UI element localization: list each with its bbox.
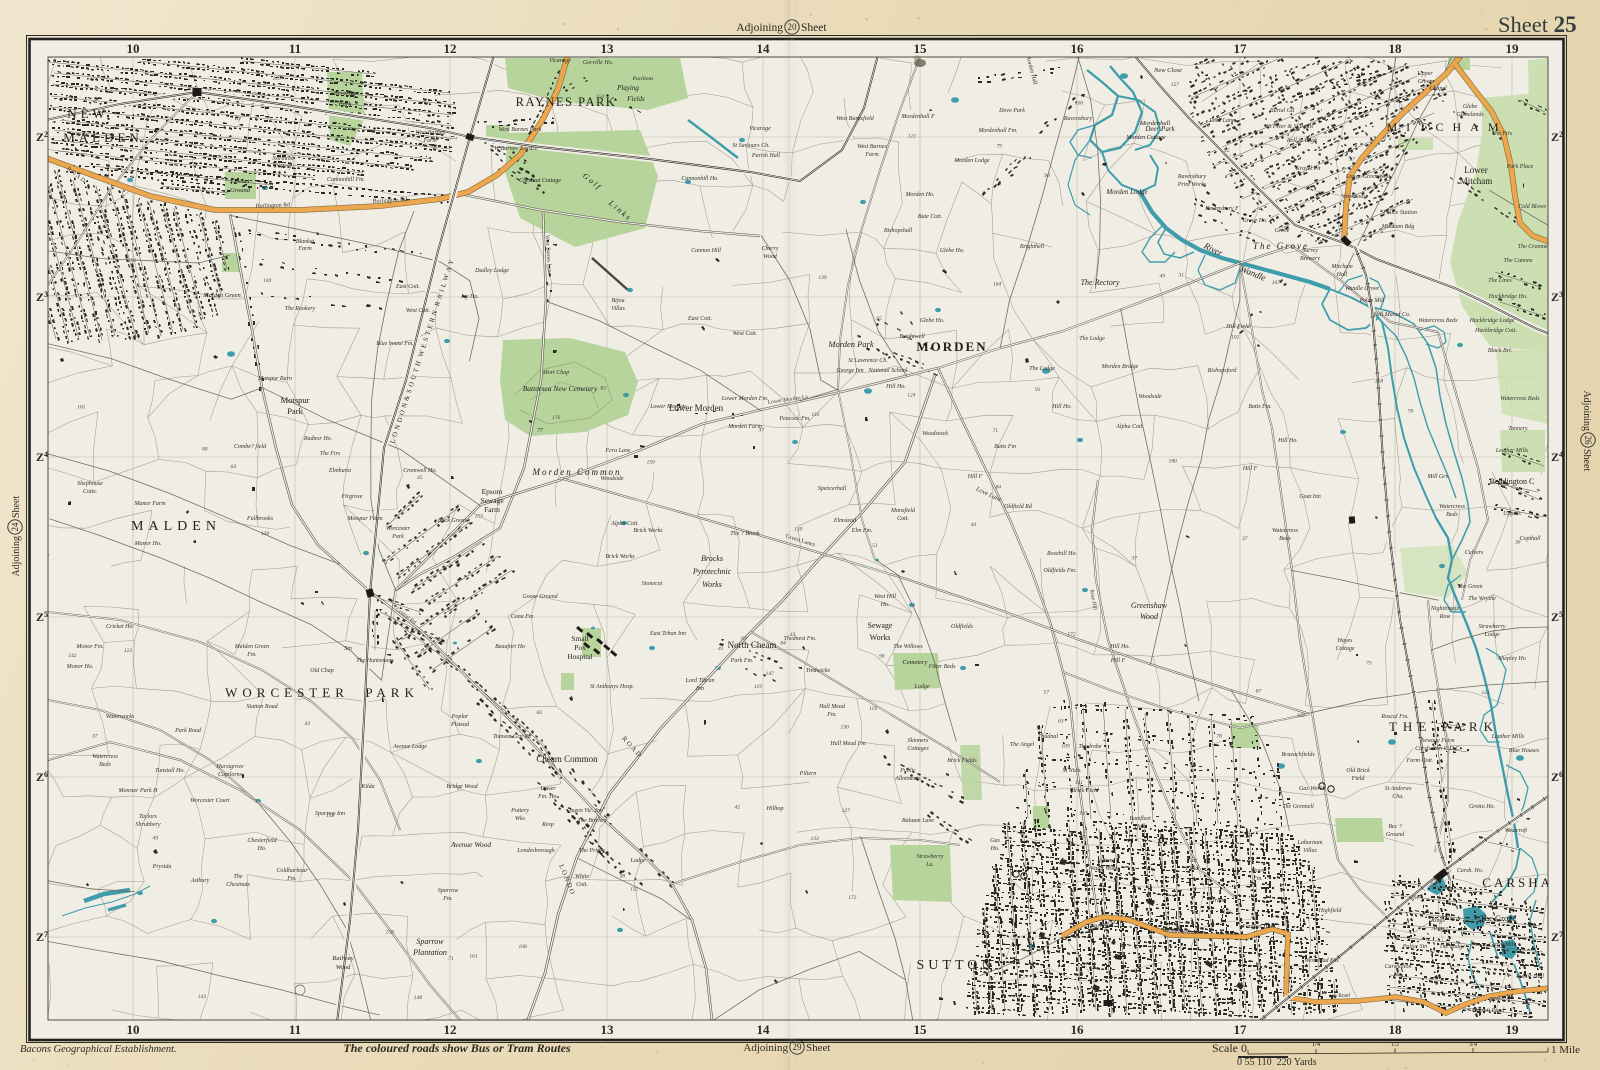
svg-text:Nightingale: Nightingale xyxy=(1430,606,1460,612)
svg-text:Inn: Inn xyxy=(695,686,704,692)
svg-text:East Cott.: East Cott. xyxy=(395,284,420,290)
svg-text:Hilltop: Hilltop xyxy=(765,806,783,812)
svg-text:St Nich.: St Nich. xyxy=(1063,768,1082,774)
svg-text:78: 78 xyxy=(1407,408,1413,414)
svg-text:19: 19 xyxy=(1506,1022,1520,1037)
svg-text:Bavensbury F: Bavensbury F xyxy=(1205,206,1239,212)
svg-text:Gravel Pit: Gravel Pit xyxy=(1295,166,1320,172)
svg-text:West Barnes Park: West Barnes Park xyxy=(499,127,542,133)
svg-text:Farm: Farm xyxy=(422,138,437,144)
svg-text:Mitcham: Mitcham xyxy=(1330,264,1353,270)
svg-text:Monster Park H: Monster Park H xyxy=(118,788,159,794)
svg-text:Glebelands: Glebelands xyxy=(1456,112,1484,118)
svg-text:101: 101 xyxy=(1411,895,1420,901)
svg-text:Chesterfield: Chesterfield xyxy=(247,837,277,844)
svg-text:Motspur Farm: Motspur Farm xyxy=(346,516,383,522)
svg-text:Bacons Geographical Establishm: Bacons Geographical Establishment. xyxy=(20,1044,177,1055)
svg-text:Farm: Farm xyxy=(864,152,879,158)
svg-text:Hall: Hall xyxy=(1134,824,1146,830)
svg-text:141: 141 xyxy=(1075,779,1084,786)
svg-text:Astbury: Astbury xyxy=(190,878,210,884)
svg-text:Plantation: Plantation xyxy=(412,948,447,957)
svg-text:Rosehill Ho.: Rosehill Ho. xyxy=(1046,551,1077,557)
svg-text:13: 13 xyxy=(601,41,615,56)
svg-text:Butts Fm: Butts Fm xyxy=(994,444,1016,450)
svg-text:W Barnes Terrace: W Barnes Terrace xyxy=(494,146,538,152)
svg-text:Oldfields: Oldfields xyxy=(951,623,974,630)
svg-text:83: 83 xyxy=(600,385,606,391)
svg-text:Pavilions: Pavilions xyxy=(632,76,654,82)
svg-text:Grove Ho.: Grove Ho. xyxy=(1242,218,1267,224)
svg-text:Watercress: Watercress xyxy=(1439,504,1466,510)
svg-text:122: 122 xyxy=(124,648,133,654)
svg-text:Bijou: Bijou xyxy=(612,298,625,304)
svg-text:Copthall: Copthall xyxy=(1519,536,1540,542)
svg-text:102: 102 xyxy=(1231,335,1240,341)
svg-text:Captlorns: Captlorns xyxy=(218,772,243,778)
svg-text:Lock Lane: Lock Lane xyxy=(1208,118,1235,124)
svg-text:Wood: Wood xyxy=(763,254,777,260)
svg-text:77: 77 xyxy=(537,428,544,434)
svg-text:Poplar: Poplar xyxy=(451,714,469,720)
svg-text:Kilda: Kilda xyxy=(360,784,374,790)
svg-text:Morden Cottage: Morden Cottage xyxy=(1125,135,1166,141)
svg-text:The Green: The Green xyxy=(1457,584,1482,590)
svg-text:Radnor Ho.: Radnor Ho. xyxy=(303,436,332,442)
svg-text:42: 42 xyxy=(734,803,740,810)
svg-text:Pottery: Pottery xyxy=(510,808,529,814)
svg-text:Stn: Stn xyxy=(344,646,352,652)
svg-text:Wood: Wood xyxy=(1140,612,1159,621)
svg-text:THE PARK: THE PARK xyxy=(1389,719,1499,734)
svg-text:Fm.: Fm. xyxy=(246,652,257,658)
svg-text:St Lawrence Ch.: St Lawrence Ch. xyxy=(848,358,888,364)
svg-text:127: 127 xyxy=(842,808,851,814)
svg-text:Works: Works xyxy=(870,633,891,642)
svg-text:14: 14 xyxy=(757,41,771,56)
svg-text:Watercress Beds: Watercress Beds xyxy=(1500,396,1540,402)
svg-text:78: 78 xyxy=(1216,734,1222,740)
svg-text:Laburnum: Laburnum xyxy=(1296,840,1323,846)
svg-text:93: 93 xyxy=(741,636,747,642)
svg-text:66: 66 xyxy=(536,710,542,716)
svg-text:Cotts.: Cotts. xyxy=(83,489,97,495)
svg-text:57: 57 xyxy=(1044,690,1050,696)
svg-text:Woodstock: Woodstock xyxy=(922,431,948,437)
svg-text:180: 180 xyxy=(1168,459,1177,465)
svg-text:Hackbridge Cott.: Hackbridge Cott. xyxy=(1474,328,1517,334)
svg-text:Adjoining: Adjoining xyxy=(743,1042,788,1054)
svg-text:Cricket: Cricket xyxy=(230,178,249,185)
svg-text:Woodside: Woodside xyxy=(600,476,623,482)
svg-text:St Saviours Ch.: St Saviours Ch. xyxy=(732,143,769,149)
svg-text:158: 158 xyxy=(385,930,394,936)
svg-text:The Wrythe: The Wrythe xyxy=(1468,596,1496,602)
svg-text:Cannonhill Ho.: Cannonhill Ho. xyxy=(681,176,718,182)
svg-text:172: 172 xyxy=(1067,631,1076,637)
svg-text:Brick Works: Brick Works xyxy=(605,554,635,560)
svg-text:Public: Public xyxy=(899,768,916,774)
svg-text:Pox: Pox xyxy=(574,643,586,652)
svg-text:119: 119 xyxy=(754,684,762,690)
svg-text:Goose Ground: Goose Ground xyxy=(522,594,558,600)
svg-text:Monor Ho.: Monor Ho. xyxy=(66,664,94,670)
svg-text:Police Station: Police Station xyxy=(1382,210,1417,216)
svg-text:The Canons: The Canons xyxy=(1504,258,1534,264)
svg-text:37: 37 xyxy=(758,428,765,434)
svg-text:Roll & Bagb: Roll & Bagb xyxy=(1286,138,1317,144)
svg-text:Elmstead: Elmstead xyxy=(833,518,857,524)
svg-text:Batts Fm.: Batts Fm. xyxy=(1248,404,1271,410)
svg-text:31: 31 xyxy=(1178,273,1185,279)
svg-text:143: 143 xyxy=(198,993,207,1000)
svg-text:Villas: Villas xyxy=(1303,848,1317,854)
svg-text:11: 11 xyxy=(289,1022,301,1037)
svg-text:Hill Ho.: Hill Ho. xyxy=(885,384,906,390)
svg-text:Upper: Upper xyxy=(1417,71,1433,77)
svg-text:125: 125 xyxy=(273,76,282,82)
svg-text:Workhouse: Workhouse xyxy=(1342,194,1369,200)
svg-text:56: 56 xyxy=(130,258,136,264)
svg-text:161: 161 xyxy=(469,953,478,959)
svg-text:Queen Vic. Inn: Queen Vic. Inn xyxy=(567,808,603,814)
svg-text:Hill F: Hill F xyxy=(1242,466,1258,472)
svg-text:37: 37 xyxy=(1241,536,1248,542)
svg-text:Avenue Wood: Avenue Wood xyxy=(450,840,492,849)
svg-text:Wood: Wood xyxy=(336,964,351,971)
svg-text:Ravensbury: Ravensbury xyxy=(1177,174,1207,180)
svg-text:Oldfield Rd: Oldfield Rd xyxy=(1004,503,1033,510)
svg-text:36: 36 xyxy=(1514,539,1521,545)
svg-text:Beds: Beds xyxy=(1279,536,1291,542)
svg-text:49: 49 xyxy=(1160,272,1166,279)
svg-text:Fm.: Fm. xyxy=(286,876,297,882)
svg-text:Lodge: Lodge xyxy=(1484,632,1500,638)
svg-text:Norbiton: Norbiton xyxy=(271,156,294,162)
svg-text:Cemetery: Cemetery xyxy=(903,659,928,666)
svg-text:The Firs: The Firs xyxy=(1492,131,1513,137)
svg-text:Adjoining: Adjoining xyxy=(11,536,22,577)
svg-text:The Rookery: The Rookery xyxy=(285,306,316,312)
svg-text:Sheet: Sheet xyxy=(801,22,827,34)
svg-text:Strawberry: Strawberry xyxy=(1479,624,1506,630)
svg-text:Leather Mills: Leather Mills xyxy=(1495,448,1529,454)
svg-text:Lower Morden: Lower Morden xyxy=(649,404,686,410)
svg-text:Station Road: Station Road xyxy=(246,704,278,710)
svg-text:116: 116 xyxy=(811,412,819,418)
svg-text:Hospital: Hospital xyxy=(567,652,592,661)
svg-text:West Barnes: West Barnes xyxy=(857,144,887,150)
svg-text:Westcroft: Westcroft xyxy=(1505,827,1528,834)
svg-text:Lodge: Lodge xyxy=(914,684,930,690)
svg-text:Shephouse: Shephouse xyxy=(77,481,103,487)
svg-text:Park: Park xyxy=(391,534,404,540)
svg-text:The Huntsmans: The Huntsmans xyxy=(356,658,394,664)
svg-text:37: 37 xyxy=(91,734,98,740)
svg-text:91: 91 xyxy=(1035,387,1041,393)
svg-text:St Anthonys Hosp.: St Anthonys Hosp. xyxy=(590,684,634,690)
svg-text:Playing: Playing xyxy=(616,84,639,92)
svg-text:Cherry: Cherry xyxy=(762,246,779,252)
svg-text:Farm Cott.: Farm Cott. xyxy=(1406,758,1434,764)
svg-text:Piltern: Piltern xyxy=(799,771,817,777)
svg-text:124: 124 xyxy=(907,392,916,399)
svg-text:Mort Chap: Mort Chap xyxy=(542,370,570,376)
svg-text:Resp: Resp xyxy=(541,822,554,828)
svg-text:Blanket: Blanket xyxy=(296,239,315,245)
svg-text:West Cott.: West Cott. xyxy=(733,331,757,337)
svg-text:Public Hall: Public Hall xyxy=(1515,974,1544,980)
svg-text:Filter Beds: Filter Beds xyxy=(928,664,956,670)
svg-text:Sheet: Sheet xyxy=(1581,449,1592,471)
svg-text:Print Works: Print Works xyxy=(1177,182,1207,188)
svg-text:71: 71 xyxy=(448,956,454,962)
svg-text:Highfield: Highfield xyxy=(1318,907,1343,914)
svg-text:Sparrow: Sparrow xyxy=(438,888,458,894)
svg-text:Scale 0: Scale 0 xyxy=(1212,1041,1247,1055)
svg-text:Water Works: Water Works xyxy=(1090,866,1121,872)
svg-text:109: 109 xyxy=(1061,744,1070,750)
svg-text:Woodside: Woodside xyxy=(1138,394,1161,400)
svg-text:119: 119 xyxy=(869,706,877,712)
svg-text:West Hill: West Hill xyxy=(874,594,896,600)
svg-text:MALDEN: MALDEN xyxy=(131,519,221,534)
svg-text:11: 11 xyxy=(289,41,301,56)
svg-text:150: 150 xyxy=(647,460,656,466)
svg-text:12: 12 xyxy=(444,1022,457,1037)
svg-text:Lodge: Lodge xyxy=(630,858,646,864)
svg-text:Morden Park: Morden Park xyxy=(827,339,873,349)
svg-text:Gorville Ho.: Gorville Ho. xyxy=(583,60,613,66)
svg-text:Beds: Beds xyxy=(99,762,111,768)
svg-text:Mitcham: Mitcham xyxy=(1460,176,1493,186)
svg-text:Hackbridge Ho.: Hackbridge Ho. xyxy=(1488,294,1528,300)
svg-text:Carshalton: Carshalton xyxy=(1384,964,1411,970)
svg-text:Glebe Ho.: Glebe Ho. xyxy=(940,248,965,254)
svg-text:Fcru Lane: Fcru Lane xyxy=(604,448,631,454)
svg-text:Parish Hall: Parish Hall xyxy=(751,153,781,159)
svg-text:Beddington C: Beddington C xyxy=(1490,477,1535,486)
svg-text:Cottage: Cottage xyxy=(1336,646,1355,652)
svg-text:0 55 110 220 Yards: 0 55 110 220 Yards xyxy=(1237,1057,1317,1068)
svg-text:Thadrobe: Thadrobe xyxy=(1078,744,1101,750)
svg-text:3/4: 3/4 xyxy=(1469,1041,1478,1048)
svg-text:St Andrews: St Andrews xyxy=(1385,786,1413,792)
svg-text:87: 87 xyxy=(1256,688,1262,694)
svg-text:Tomson Grn Rd: Tomson Grn Rd xyxy=(493,734,532,740)
svg-text:79: 79 xyxy=(996,144,1002,150)
svg-text:Cold Blows: Cold Blows xyxy=(1518,204,1547,210)
svg-text:Strawberry: Strawberry xyxy=(917,854,944,860)
svg-text:Sewage Farm: Sewage Farm xyxy=(1421,738,1455,744)
svg-text:100: 100 xyxy=(1075,101,1084,107)
svg-text:Lower Green West: Lower Green West xyxy=(1345,174,1391,180)
svg-text:43: 43 xyxy=(304,720,310,727)
svg-text:New Close: New Close xyxy=(1153,67,1182,74)
svg-text:Hull Mead Fm: Hull Mead Fm xyxy=(829,741,866,747)
svg-text:Balaam Lane: Balaam Lane xyxy=(902,818,935,824)
svg-text:Burial Gd: Burial Gd xyxy=(1270,108,1295,114)
svg-text:24: 24 xyxy=(10,522,20,532)
svg-text:Cott.: Cott. xyxy=(897,516,909,522)
svg-text:Vicarage: Vicarage xyxy=(749,126,771,132)
svg-text:117: 117 xyxy=(1440,927,1448,933)
svg-text:Old Chap: Old Chap xyxy=(310,668,334,674)
svg-text:Lord Tibran: Lord Tibran xyxy=(685,678,715,684)
svg-text:Adjoining: Adjoining xyxy=(736,22,783,34)
svg-text:Row: Row xyxy=(1439,614,1451,620)
svg-text:Coldharbour: Coldharbour xyxy=(276,868,308,874)
svg-text:West Barnsfield: West Barnsfield xyxy=(836,115,875,122)
svg-text:The Grennell: The Grennell xyxy=(1282,804,1314,810)
svg-text:64: 64 xyxy=(230,463,236,470)
svg-text:NEW: NEW xyxy=(67,106,109,121)
svg-text:Pelar Mill: Pelar Mill xyxy=(1359,298,1385,304)
svg-text:Pottery: Pottery xyxy=(273,164,292,170)
svg-text:96: 96 xyxy=(879,653,885,659)
svg-text:Ho.: Ho. xyxy=(880,602,890,608)
svg-text:1/2: 1/2 xyxy=(1391,1041,1399,1048)
svg-text:Ground: Ground xyxy=(230,187,251,194)
svg-text:Ho.: Ho. xyxy=(257,846,267,852)
svg-text:Cannon Hill: Cannon Hill xyxy=(691,248,721,254)
svg-text:Tunstall Ho.: Tunstall Ho. xyxy=(155,768,185,774)
svg-text:Cromwell Ho.: Cromwell Ho. xyxy=(403,468,437,474)
svg-text:Hill F: Hill F xyxy=(967,474,983,480)
svg-text:Grove: Grove xyxy=(1275,228,1290,234)
svg-text:Tannery: Tannery xyxy=(1508,426,1528,432)
svg-text:Brick Fields: Brick Fields xyxy=(947,758,977,764)
svg-text:Cona Fm: Cona Fm xyxy=(511,614,534,620)
svg-text:Lower: Lower xyxy=(539,786,556,792)
svg-text:Bishopsford: Bishopsford xyxy=(1208,367,1238,374)
svg-text:Plstead: Plstead xyxy=(450,722,470,728)
svg-text:Dove Park: Dove Park xyxy=(998,108,1025,114)
svg-text:158: 158 xyxy=(1375,379,1384,385)
svg-text:White: White xyxy=(575,874,589,880)
svg-text:Morden Bridge: Morden Bridge xyxy=(1101,364,1139,370)
svg-text:Sheet: Sheet xyxy=(11,496,22,518)
svg-text:Leather Mills: Leather Mills xyxy=(1491,734,1525,740)
svg-text:Surrey: Surrey xyxy=(1302,248,1318,254)
svg-text:Blue Houses: Blue Houses xyxy=(1509,748,1540,754)
svg-text:Glebe: Glebe xyxy=(1463,104,1478,110)
svg-text:148: 148 xyxy=(414,994,423,1001)
svg-text:15: 15 xyxy=(914,41,928,56)
svg-text:The Lodge: The Lodge xyxy=(1029,366,1055,372)
svg-text:Beaufort Ho: Beaufort Ho xyxy=(495,643,525,650)
svg-text:Greenshaw: Greenshaw xyxy=(1131,601,1168,610)
svg-text:1/4: 1/4 xyxy=(1312,1041,1321,1048)
svg-text:St Peter & St Pauls: St Peter & St Pauls xyxy=(1267,124,1314,130)
svg-text:Glebe Ho.: Glebe Ho. xyxy=(920,318,945,324)
svg-text:44: 44 xyxy=(971,521,977,528)
svg-text:Battersea New Cemetery: Battersea New Cemetery xyxy=(523,384,598,393)
svg-text:Brick Field: Brick Field xyxy=(1071,788,1099,794)
svg-text:The Willows: The Willows xyxy=(893,644,923,650)
svg-text:49: 49 xyxy=(153,835,159,842)
svg-text:The: The xyxy=(234,874,243,880)
svg-text:Bamfleet: Bamfleet xyxy=(1129,815,1151,822)
svg-text:139: 139 xyxy=(818,275,827,281)
svg-text:Works: Works xyxy=(702,580,722,589)
svg-text:La.: La. xyxy=(925,862,934,868)
svg-text:17: 17 xyxy=(1234,1022,1248,1037)
svg-text:Brightwell: Brightwell xyxy=(899,334,925,340)
svg-text:Hall: Hall xyxy=(1336,272,1348,278)
svg-text:Hill Field: Hill Field xyxy=(1225,324,1250,330)
svg-text:84: 84 xyxy=(996,483,1002,490)
svg-text:The Lodge: The Lodge xyxy=(1079,336,1105,342)
svg-text:18: 18 xyxy=(1389,1022,1403,1037)
svg-text:112: 112 xyxy=(630,887,638,893)
svg-text:Lower Morden Fm.: Lower Morden Fm. xyxy=(721,396,769,402)
svg-text:Malden Green: Malden Green xyxy=(202,292,240,299)
svg-text:139: 139 xyxy=(261,531,270,537)
svg-text:Dudley Lodge: Dudley Lodge xyxy=(474,268,509,274)
svg-text:Green: Green xyxy=(1418,79,1433,85)
svg-text:158: 158 xyxy=(326,813,335,819)
svg-text:176: 176 xyxy=(552,415,561,421)
svg-text:The Grove: The Grove xyxy=(1480,913,1517,923)
svg-text:The Priory: The Priory xyxy=(579,848,606,854)
svg-text:Morden Lodge: Morden Lodge xyxy=(953,158,990,164)
svg-text:Monor Fm.: Monor Fm. xyxy=(75,644,103,650)
svg-text:Sewage: Sewage xyxy=(480,496,504,505)
svg-text:The Lodge: The Lodge xyxy=(1439,944,1465,950)
svg-text:41: 41 xyxy=(718,645,724,652)
svg-text:121: 121 xyxy=(908,133,917,139)
svg-text:51: 51 xyxy=(872,543,878,549)
svg-text:Fanflset Hall: Fanflset Hall xyxy=(1241,923,1274,930)
svg-text:Railway: Railway xyxy=(331,955,353,962)
svg-text:80: 80 xyxy=(202,446,208,452)
svg-text:15: 15 xyxy=(914,1022,928,1037)
svg-text:Spencerhall: Spencerhall xyxy=(818,486,847,492)
svg-text:Hill Ho.: Hill Ho. xyxy=(1051,404,1072,410)
svg-text:Avenue Lodge: Avenue Lodge xyxy=(392,744,427,750)
svg-text:Uppers: Uppers xyxy=(1503,511,1521,517)
svg-text:Fm. Ho.: Fm. Ho. xyxy=(537,794,558,800)
svg-text:The ? Brook: The ? Brook xyxy=(730,531,760,537)
svg-text:The coloured roads show Bus or: The coloured roads show Bus or Tram Rout… xyxy=(343,1041,571,1055)
svg-text:Epsom: Epsom xyxy=(482,487,503,496)
svg-text:136: 136 xyxy=(1223,910,1232,916)
svg-text:Elm Fm.: Elm Fm. xyxy=(851,528,873,534)
svg-text:Carshalton U.D.C.: Carshalton U.D.C. xyxy=(1415,746,1461,752)
svg-text:Mitcham Bdg: Mitcham Bdg xyxy=(1381,224,1415,230)
svg-text:Ho.: Ho. xyxy=(1393,972,1403,978)
svg-text:Chestnut Cottage: Chestnut Cottage xyxy=(519,178,561,184)
svg-text:Fm.: Fm. xyxy=(1252,876,1263,882)
svg-text:Mordenhall Fm.: Mordenhall Fm. xyxy=(977,128,1017,134)
svg-text:Hill Ho.: Hill Ho. xyxy=(1109,644,1130,650)
svg-text:Sheet 25: Sheet 25 xyxy=(1498,12,1577,37)
svg-text:Beds: Beds xyxy=(1446,512,1458,518)
svg-text:Blue house Fm.: Blue house Fm. xyxy=(376,341,414,347)
svg-text:167: 167 xyxy=(1272,280,1281,286)
svg-text:45: 45 xyxy=(1224,147,1230,154)
svg-text:The Grove: The Grove xyxy=(1253,241,1309,251)
svg-text:The Rectory: The Rectory xyxy=(1081,278,1120,287)
svg-text:Tram: Tram xyxy=(1212,898,1225,904)
svg-text:Police Stn: Police Stn xyxy=(1402,944,1428,950)
svg-text:Carsh. Ho.: Carsh. Ho. xyxy=(1457,868,1484,874)
svg-text:Ry: Ry xyxy=(234,116,242,122)
svg-text:10: 10 xyxy=(127,1022,140,1037)
svg-text:Ivy Ho.: Ivy Ho. xyxy=(460,294,479,300)
svg-text:Brewery: Brewery xyxy=(1300,256,1320,262)
